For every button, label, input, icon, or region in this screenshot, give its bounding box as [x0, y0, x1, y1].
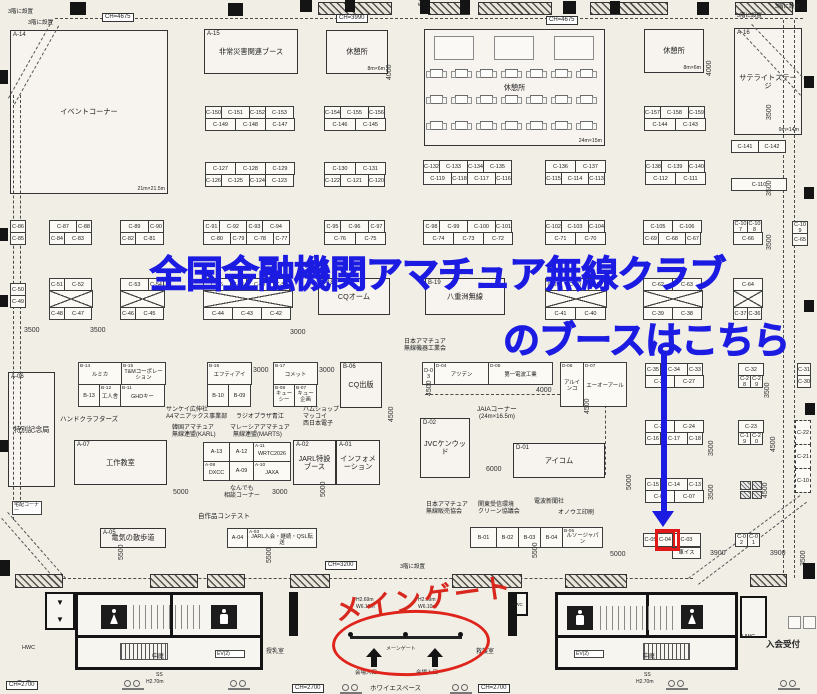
elevator-arrow-icon: ▼	[56, 615, 64, 624]
booth-block: C-127C-128C-129C-126C-125C-124C-123	[205, 162, 295, 187]
booth-cell: B-14ルミカ	[78, 362, 122, 385]
booth-row: C-115C-114C-113	[545, 172, 606, 185]
table-icon	[530, 69, 543, 78]
booth-cell: D-06アルインコ	[560, 362, 584, 407]
booth-block: C-150C-151C-152C-153C-149C-148C-147	[205, 106, 295, 131]
booth-exhibitor: JAXA	[264, 471, 279, 477]
table-icon	[530, 121, 543, 130]
booth-cell: C-122	[324, 174, 341, 187]
wall	[78, 635, 260, 638]
booth-cell: B-08キューシー	[273, 384, 295, 407]
booth-row: A-13A-12A-11WRTC2026	[203, 442, 291, 462]
floor-label: 韓国アマチュア	[172, 425, 214, 432]
booth-cell: C-43	[232, 307, 262, 320]
pillar	[460, 0, 470, 14]
booth-cell: B-01	[470, 527, 497, 548]
floor-label: A4マニアックス事業部	[166, 414, 227, 421]
booth-cell: B-13	[78, 384, 100, 407]
booth-id: A-03	[249, 530, 259, 536]
hatch-block	[15, 574, 63, 588]
booth-cell: C-145	[355, 118, 386, 131]
booth-block: C-51C-52C-48C-47	[49, 278, 93, 320]
booth-block: C-31C-30	[797, 363, 811, 388]
booth-cell: C-01	[747, 533, 760, 547]
dimension-label: 3500	[764, 382, 771, 398]
booth-row: C-149C-148C-147	[205, 118, 295, 131]
floor-label: 中庭	[643, 654, 655, 661]
hatch-block	[750, 574, 787, 587]
booth-cell: C-82	[120, 232, 136, 245]
booth-cell: C-16	[645, 432, 661, 445]
booth-cell: C-116	[495, 172, 512, 185]
booth-cell: A-12	[229, 442, 254, 462]
floor-label: H2.70m	[146, 679, 164, 686]
booth-row: C-30	[797, 375, 811, 388]
boundary-line	[425, 394, 560, 395]
vending-cell	[740, 491, 751, 500]
floor-label: 入会受付	[766, 641, 800, 648]
booth-id: B-16	[209, 364, 219, 370]
booth-exhibitor: エフティアイ	[213, 373, 247, 379]
booth-cell: C-120	[368, 174, 385, 187]
floor-label: ホワイエスペース	[370, 685, 421, 692]
bench-icon	[778, 680, 800, 690]
pillar	[0, 70, 8, 84]
area-box: A-06特別記念局	[8, 372, 55, 487]
booth-id: B-05	[564, 529, 574, 535]
dimension-label: 3500	[24, 327, 40, 334]
booth-cell: C-26	[645, 375, 675, 388]
booth-block: D-06アルインコD-07エーオーアール	[560, 362, 627, 407]
female-restroom-icon	[110, 609, 118, 625]
booth-block: C-02C-01	[735, 533, 760, 547]
floor-label: 3階に設置	[28, 20, 53, 27]
booth-block: C-50C-49	[10, 283, 26, 308]
booth-cell: B-17コメット	[273, 362, 318, 385]
booth-row: C-65	[792, 233, 808, 246]
booth-row: C-08C-07	[645, 490, 704, 503]
floor-label: 授乳室	[266, 649, 284, 656]
pillar	[563, 1, 576, 14]
booth-cell: C-18	[687, 432, 703, 445]
pillar	[0, 440, 8, 452]
boundary-line	[783, 20, 784, 578]
pillar	[803, 563, 815, 579]
floor-label: 電波新聞社	[534, 499, 564, 506]
booth-block: C-86C-85	[10, 220, 26, 245]
booth-block: C-23C-19C-20	[738, 420, 764, 445]
booth-id: B-11	[122, 386, 132, 392]
floor-label: マレーシアアマチュア	[230, 425, 290, 432]
ch-label: CH=4675	[102, 13, 134, 22]
booth-row: B-13B-12工人舎B-11GHDキー	[78, 384, 166, 407]
elevator-arrow-icon: ▼	[56, 598, 64, 607]
vending-machines-icon	[740, 481, 762, 499]
booth-cell: C-124	[249, 174, 266, 187]
booth-row: A-04A-03JARL入会・継続・QSL転送	[227, 528, 317, 548]
floor-label: 関東受信環境	[478, 502, 514, 509]
booth-cell: A-10JAXA	[253, 461, 291, 481]
note-line2: のブースはこちら	[503, 310, 789, 364]
blue-arrow	[661, 352, 667, 512]
table-icon	[480, 121, 493, 130]
booth-cell: B-04	[540, 527, 563, 548]
dimension-label: 3000	[290, 329, 306, 336]
vending-cell	[752, 491, 763, 500]
booth-block: C-130C-131C-122C-121C-120	[324, 162, 386, 187]
table-icon	[580, 121, 593, 130]
booth-block: C-15C-14C-13C-08C-07	[645, 478, 704, 503]
floor-label: SS	[644, 672, 651, 679]
floor-label: ラジオプラザ青江	[236, 414, 284, 421]
booth-block: C-22C-21C-10	[795, 420, 811, 493]
booth-cell: C-143	[675, 118, 706, 131]
booth-cell: B-02	[496, 527, 519, 548]
booth-cell: C-85	[10, 232, 26, 245]
ch-label: CH=3200	[325, 561, 357, 570]
booth-cell: C-46	[120, 307, 136, 320]
booth-cell: C-42	[261, 307, 291, 320]
booth-row: C-48C-47	[49, 307, 93, 320]
booth-block: A-04A-03JARL入会・継続・QSL転送	[227, 528, 317, 548]
booth-block: B-17コメットB-08キューシーB-07キュー企画	[273, 362, 318, 407]
dimension-label: 4500	[762, 482, 769, 498]
floor-label: オノウエ印刷	[558, 510, 594, 517]
booth-cell: C-110	[731, 178, 787, 191]
boundary-line	[794, 20, 795, 578]
booth-cell: C-47	[64, 307, 92, 320]
booth-cell: C-142	[758, 140, 786, 153]
service-box	[788, 616, 801, 629]
booth-row: C-119C-118C-117C-116	[423, 172, 512, 185]
bench-icon	[340, 684, 362, 694]
area-box: A-07工作教室	[74, 440, 167, 485]
area-label: インフォメーション	[337, 441, 379, 484]
booth-exhibitor: GHDキー	[130, 395, 155, 401]
note-line1: 全国金融機関アマチュア無線クラブ	[150, 244, 725, 298]
booth-id: B-17	[275, 364, 285, 370]
booth-row: B-16エフティアイ	[207, 362, 252, 385]
booth-cell: C-49	[10, 295, 26, 308]
dimension-label: 4500	[770, 436, 777, 452]
booth-exhibitor: キュー企画	[295, 392, 316, 404]
booth-exhibitor: JARL入会・継続・QSL転送	[248, 535, 316, 547]
table-icon	[505, 69, 518, 78]
hatch-block	[150, 574, 198, 588]
pillar	[70, 2, 86, 15]
ch-label: CH=2700	[6, 681, 38, 690]
male-restroom-icon	[220, 609, 228, 625]
floor-label: 宅配コーナー	[12, 501, 42, 515]
pillar	[345, 0, 355, 12]
booth-cell: C-44	[203, 307, 233, 320]
booth-row: C-22	[795, 420, 811, 445]
area-label: CQ出版	[341, 363, 381, 407]
booth-row: D-03D-04アツデンD-05第一電波工業	[422, 362, 553, 385]
floor-label: H2.70m	[636, 679, 654, 686]
booth-cell: C-118	[451, 172, 468, 185]
booth-cell: C-83	[64, 232, 92, 245]
booth-block: C-110	[731, 178, 787, 191]
dimension-label: 4000	[536, 387, 552, 394]
highlight-red-box	[655, 529, 680, 551]
booth-row: D-06アルインコD-07エーオーアール	[560, 362, 627, 407]
booth-cell: B-12工人舎	[99, 384, 121, 407]
booth-exhibitor: 工人舎	[101, 395, 119, 401]
booth-cell: B-15T&Mコーポレーション	[121, 362, 166, 385]
dimension-label: 3500	[708, 440, 715, 456]
floor-label: 無線連盟(KARL)	[172, 432, 216, 439]
booth-row: C-21	[795, 444, 811, 469]
floor-label: 西日本電子	[303, 421, 333, 428]
booth-cell: A-13	[203, 442, 230, 462]
booth-block: C-102C-103C-104C-71C-70	[545, 220, 606, 245]
floor-label: 3階に設置	[775, 4, 800, 11]
dimension-label: 4000	[386, 64, 393, 80]
floor-label: EV(2)	[215, 650, 245, 658]
booth-row: C-19C-20	[738, 432, 764, 445]
booth-block: C-107C-108C-66	[733, 220, 763, 245]
area-box: B-06CQ出版	[340, 362, 382, 408]
booth-exhibitor: ルソージャパン	[563, 534, 602, 546]
table-icon	[505, 95, 518, 104]
booth-cell: B-11GHDキー	[120, 384, 165, 407]
booth-cell: C-125	[221, 174, 250, 187]
area-label: 電気の散歩道	[101, 529, 165, 547]
booth-row: C-126C-125C-124C-123	[205, 174, 295, 187]
gate-post	[289, 592, 298, 636]
area-size: 8m×6m	[684, 65, 701, 71]
booth-row: C-141C-142	[731, 140, 786, 153]
booth-row: C-49	[10, 295, 26, 308]
booth-cell: A-09	[229, 461, 254, 481]
booth-row: C-112C-111	[645, 172, 706, 185]
booth-exhibitor: キューシー	[274, 392, 294, 404]
floorplan-canvas: ▼▼ 全国金融機関アマチュア無線クラブ のブースはこちら メインゲート A-14…	[0, 0, 817, 694]
booth-id: B-12	[101, 386, 111, 392]
dimension-label: 5500	[532, 542, 539, 558]
area-box: D-01アイコム	[513, 443, 605, 478]
vending-cell	[740, 481, 751, 490]
left-elevator-annex: ▼▼	[45, 592, 75, 630]
booth-row: C-16C-17C-18	[645, 432, 704, 445]
floor-label: SS	[156, 672, 163, 679]
area-box: A-15非常災害関連ブース	[204, 29, 298, 74]
booth-cell: C-27	[674, 375, 704, 388]
booth-id: B-14	[80, 364, 90, 370]
booth-id: D-06	[562, 364, 572, 370]
booth-cell: A-08DXCC	[203, 461, 230, 481]
dimension-label: 5000	[173, 489, 189, 496]
area-label: アイコム	[514, 444, 604, 477]
pillar	[804, 300, 814, 312]
booth-block: C-109C-65	[792, 221, 808, 246]
booth-cell: C-21	[795, 444, 811, 469]
booth-cell: C-119	[423, 172, 452, 185]
booth-row: C-28C-29	[738, 375, 764, 388]
floor-label: ハムショップ	[303, 407, 339, 414]
table-icon	[480, 69, 493, 78]
boundary-line	[605, 400, 606, 475]
booth-exhibitor: T&Mコーポレーション	[122, 370, 165, 382]
booth-cell: C-114	[561, 172, 589, 185]
booth-block: C-154C-155C-156C-146C-145	[324, 106, 386, 131]
booth-block: C-141C-142	[731, 140, 786, 153]
booth-cell: C-117	[467, 172, 496, 185]
pillar	[804, 187, 814, 199]
booth-row: C-44C-43C-42	[203, 307, 293, 320]
booth-cell: C-112	[645, 172, 676, 185]
booth-block: C-95C-96C-97C-76C-75	[324, 220, 386, 245]
booth-row	[49, 290, 93, 308]
hatch-block	[207, 574, 245, 588]
booth-block: C-25C-24C-16C-17C-18	[645, 420, 704, 445]
dimension-label: 3000	[272, 489, 288, 496]
table-icon	[455, 69, 468, 78]
area-box: D-02JVCケンウッド	[420, 418, 470, 478]
booth-cell: C-121	[340, 174, 369, 187]
female-restro om-icon	[101, 605, 127, 629]
booth-id: B-15	[123, 364, 133, 370]
booth-block: B-14ルミカB-15T&MコーポレーションB-13B-12工人舎B-11GHD…	[78, 362, 166, 407]
hatch-block	[590, 2, 668, 15]
floor-label: EV(2)	[574, 650, 604, 658]
booth-cell: C-07	[674, 490, 704, 503]
booth-row: C-02C-01	[735, 533, 760, 547]
floor-label: JAIAコーナー	[477, 406, 517, 413]
area-box: A-05電気の散歩道	[100, 528, 166, 548]
floor-label: 日本アマチュア	[426, 502, 468, 509]
booth-row: C-66	[733, 232, 763, 245]
floor-label: 中庭	[152, 654, 164, 661]
booth-row: C-85	[10, 232, 26, 245]
booth-row: B-14ルミカB-15T&Mコーポレーション	[78, 362, 166, 385]
diagonal-line	[7, 512, 66, 579]
booth-cell: C-29	[750, 375, 763, 388]
dimension-label: 3500	[766, 234, 773, 250]
area-size: 24m×15m	[579, 138, 602, 144]
booth-cell: C-22	[795, 420, 811, 445]
dimension-label: 3500	[766, 104, 773, 120]
booth-cell: C-45	[135, 307, 164, 320]
booth-row: C-46C-45	[120, 307, 165, 320]
booth-block: C-136C-137C-115C-114C-113	[545, 160, 606, 185]
ch-label: CH=2700	[478, 684, 510, 693]
pillar	[804, 76, 814, 88]
left-restroom-building	[75, 592, 263, 670]
table-icon	[580, 95, 593, 104]
blue-arrow-head	[652, 511, 674, 527]
floor-label: 無線販売協会	[426, 509, 462, 516]
booth-exhibitor: DXCC	[208, 471, 225, 477]
bench-icon	[228, 680, 250, 690]
male-restroom-icon	[576, 610, 584, 626]
booth-row: C-26C-27	[645, 375, 704, 388]
male-restroom-icon	[211, 605, 237, 629]
booth-cell: C-48	[49, 307, 65, 320]
female-restroom-icon	[681, 605, 703, 629]
booth-cell: B-09	[228, 384, 251, 407]
male-restroom-icon	[567, 606, 593, 630]
booth-exhibitor: 第一電波工業	[503, 373, 537, 379]
pillar	[610, 1, 620, 14]
ch-label: CH=3990	[336, 14, 368, 23]
dimension-label: 6000	[486, 466, 502, 473]
area-box: 休憩所8m×6m	[326, 30, 388, 74]
booth-exhibitor: アツデン	[450, 373, 474, 379]
booth-cell: C-123	[265, 174, 294, 187]
area-size: 21m×21.5m	[137, 186, 165, 192]
booth-cell: C-115	[545, 172, 562, 185]
booth-row: B-17コメット	[273, 362, 318, 385]
booth-cell: C-111	[675, 172, 706, 185]
booth-id: A-10	[255, 463, 265, 469]
floor-label: マッコイ	[303, 414, 327, 421]
area-size: 9m×14m	[779, 127, 799, 133]
booth-exhibitor: エーオーアール	[585, 384, 624, 390]
pillar	[228, 3, 243, 16]
booth-cell: B-07キュー企画	[294, 384, 317, 407]
booth-cell: A-03JARL入会・継続・QSL転送	[247, 528, 317, 548]
area-box: A-02JARL特設ブース	[293, 440, 336, 485]
booth-id: B-08	[275, 386, 285, 392]
booth-row: A-08DXCCA-09A-10JAXA	[203, 461, 291, 481]
vending-cell	[752, 481, 763, 490]
dimension-label: 5000	[610, 551, 626, 558]
booth-exhibitor: WRTC2026	[257, 452, 287, 458]
floor-label: なんでも	[230, 486, 254, 493]
bench-icon	[666, 680, 688, 690]
table-icon	[555, 95, 568, 104]
dimension-label: 3500	[766, 180, 773, 196]
bench-icon	[122, 680, 144, 690]
pillar	[0, 295, 8, 307]
service-box	[554, 36, 594, 60]
table-icon	[455, 95, 468, 104]
area-label: JVCケンウッド	[421, 419, 469, 477]
booth-cell: C-113	[588, 172, 605, 185]
hatch-block	[290, 574, 330, 588]
booth-cell: C-147	[265, 118, 295, 131]
booth-block: C-32C-28C-29	[738, 363, 764, 388]
dimension-label: 4500	[584, 398, 591, 414]
booth-block: C-89C-90C-82C-81	[120, 220, 164, 245]
booth-id: D-07	[585, 364, 595, 370]
booth-cell: A-11WRTC2026	[253, 442, 291, 462]
table-icon	[580, 69, 593, 78]
booth-cell: C-84	[49, 232, 65, 245]
dimension-label: 3500	[90, 327, 106, 334]
booth-cell: D-05第一電波工業	[488, 362, 553, 385]
dimension-label: 4500	[426, 380, 433, 396]
dimension-label: 4500	[388, 406, 395, 422]
area-box: A-01インフォメーション	[336, 440, 380, 485]
table-icon	[430, 121, 443, 130]
floor-label: 3階に設置	[400, 564, 425, 571]
floor-label: 無線機器工業会	[404, 346, 446, 353]
booth-row: C-122C-121C-120	[324, 174, 386, 187]
hatch-block	[478, 2, 552, 15]
area-label: イベントコーナー	[11, 31, 167, 193]
booth-cell: C-144	[644, 118, 676, 131]
booth-cell: B-05ルソージャパン	[562, 527, 603, 548]
service-box	[494, 36, 534, 60]
floor-label: HWC	[742, 634, 755, 641]
booth-block: B-16エフティアイB-10B-09	[207, 362, 252, 407]
dimension-label: 3000	[253, 367, 269, 374]
booth-block: C-132C-133C-134C-135C-119C-118C-117C-116	[423, 160, 512, 185]
pillar	[300, 0, 312, 12]
